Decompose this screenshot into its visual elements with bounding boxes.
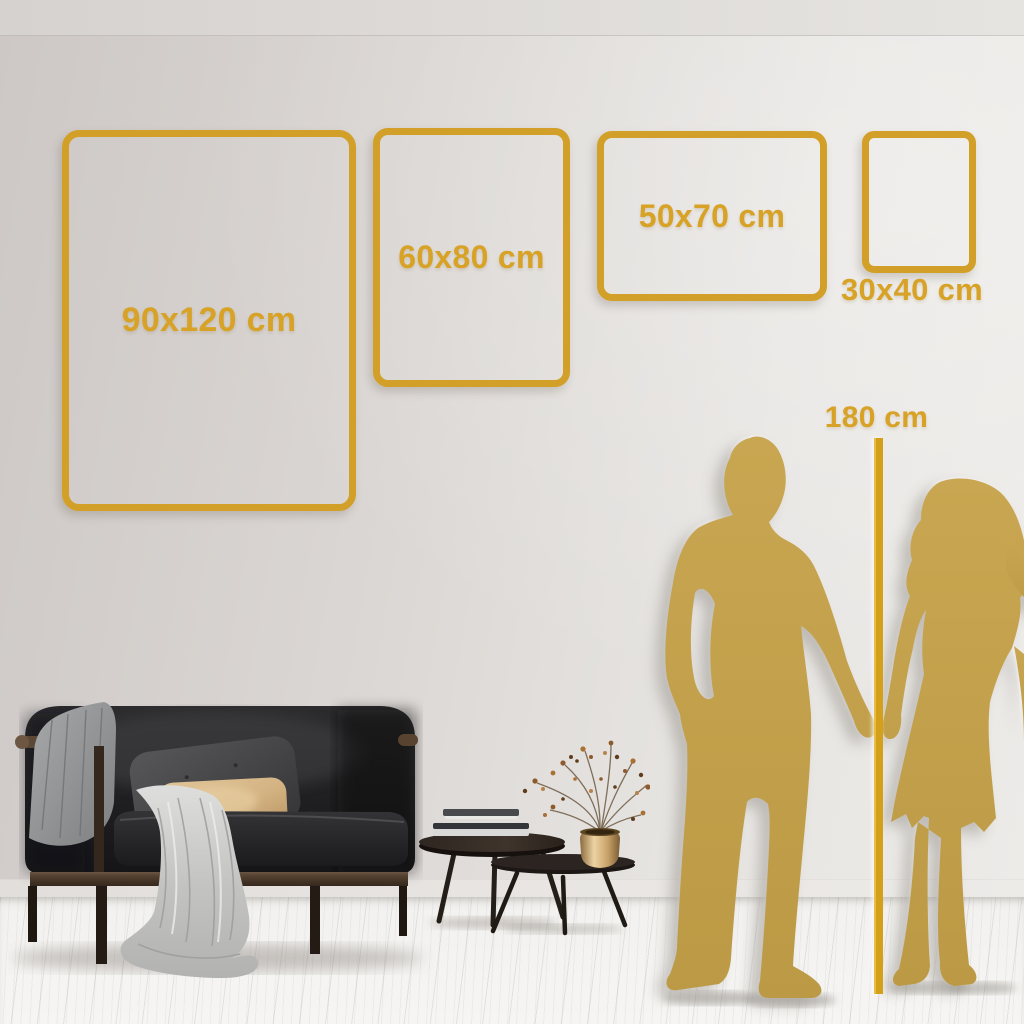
room-scene: 90x120 cm 60x80 cm 50x70 cm 30x40 cm 180… <box>0 0 1024 1024</box>
woman-arm-edge <box>1014 646 1024 742</box>
dried-berries <box>523 741 650 821</box>
sofa-armrest-knob <box>15 735 29 749</box>
frame-90x120-label: 90x120 cm <box>122 301 297 340</box>
frame-60x80-label: 60x80 cm <box>398 239 545 276</box>
nesting-coffee-tables <box>415 735 650 940</box>
height-measure-line <box>874 438 883 994</box>
frame-30x40-label: 30x40 cm <box>833 272 991 308</box>
sofa <box>8 690 438 990</box>
frame-30x40 <box>862 131 976 273</box>
sofa-front-post <box>94 746 104 874</box>
frame-90x120: 90x120 cm <box>62 130 356 511</box>
sofa-rear-leg <box>399 886 407 936</box>
ceiling <box>0 0 1024 36</box>
man-silhouette <box>665 436 875 998</box>
height-marker-label: 180 cm <box>806 401 947 435</box>
sofa-front-leg <box>96 886 107 964</box>
frame-60x80: 60x80 cm <box>373 128 570 387</box>
sofa-rear-leg <box>28 886 37 942</box>
frame-50x70-label: 50x70 cm <box>639 198 786 235</box>
frame-50x70: 50x70 cm <box>597 131 827 301</box>
couple-silhouettes <box>640 418 1024 1024</box>
sofa-front-leg <box>310 886 320 954</box>
vase-with-dried-branches <box>580 828 620 868</box>
foot-shadow <box>662 991 758 1005</box>
woman-silhouette <box>883 478 1024 986</box>
books <box>433 809 529 836</box>
